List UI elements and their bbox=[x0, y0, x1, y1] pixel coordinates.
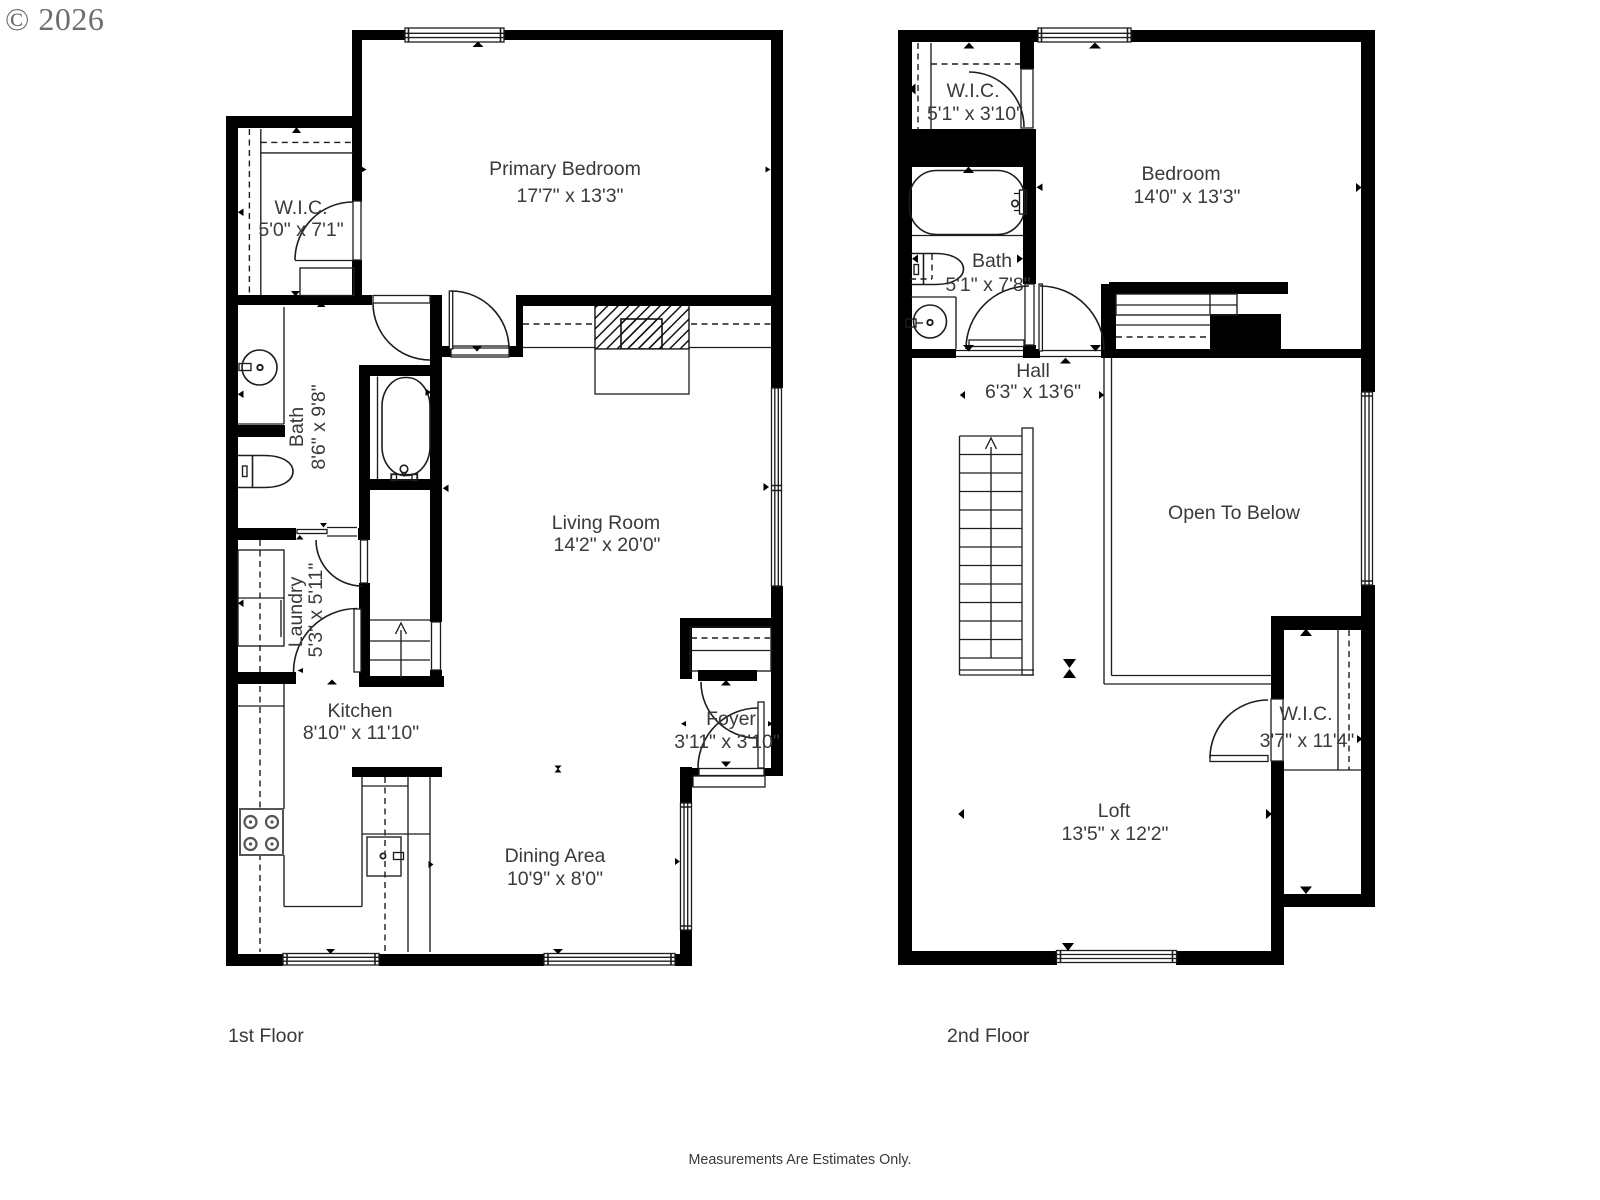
svg-text:Bath: Bath bbox=[972, 250, 1012, 272]
svg-text:Living Room: Living Room bbox=[552, 512, 660, 534]
svg-text:17'7" x 13'3": 17'7" x 13'3" bbox=[517, 185, 624, 207]
svg-text:5'1" x 7'8": 5'1" x 7'8" bbox=[945, 274, 1030, 296]
svg-text:8'10" x 11'10": 8'10" x 11'10" bbox=[303, 722, 419, 744]
svg-text:5'3" x 5'11": 5'3" x 5'11" bbox=[305, 563, 327, 658]
svg-text:W.I.C.: W.I.C. bbox=[1279, 703, 1332, 725]
svg-text:Measurements Are Estimates Onl: Measurements Are Estimates Only. bbox=[688, 1152, 911, 1168]
svg-text:13'5" x 12'2": 13'5" x 12'2" bbox=[1062, 823, 1169, 845]
svg-text:10'9" x 8'0": 10'9" x 8'0" bbox=[507, 868, 603, 890]
svg-text:1st Floor: 1st Floor bbox=[228, 1025, 304, 1047]
svg-text:Kitchen: Kitchen bbox=[327, 700, 392, 722]
svg-text:Bedroom: Bedroom bbox=[1141, 163, 1220, 185]
svg-text:W.I.C.: W.I.C. bbox=[274, 197, 327, 219]
svg-text:© 2026: © 2026 bbox=[5, 1, 104, 37]
svg-text:Primary Bedroom: Primary Bedroom bbox=[489, 158, 641, 180]
svg-text:3'7" x 11'4": 3'7" x 11'4" bbox=[1260, 730, 1355, 752]
svg-text:Dining Area: Dining Area bbox=[505, 845, 606, 867]
svg-text:2nd Floor: 2nd Floor bbox=[947, 1025, 1030, 1047]
svg-text:Laundry: Laundry bbox=[285, 577, 307, 648]
svg-text:5'0" x 7'1": 5'0" x 7'1" bbox=[258, 219, 343, 241]
svg-text:14'2" x 20'0": 14'2" x 20'0" bbox=[554, 534, 661, 556]
svg-text:W.I.C.: W.I.C. bbox=[946, 80, 999, 102]
svg-text:Foyer: Foyer bbox=[706, 708, 756, 730]
svg-text:Hall: Hall bbox=[1016, 360, 1050, 382]
svg-text:Open To Below: Open To Below bbox=[1168, 502, 1301, 524]
svg-text:Bath: Bath bbox=[286, 407, 308, 447]
svg-text:8'6" x 9'8": 8'6" x 9'8" bbox=[308, 384, 330, 469]
svg-text:Loft: Loft bbox=[1098, 800, 1131, 822]
svg-text:6'3" x 13'6": 6'3" x 13'6" bbox=[985, 381, 1081, 403]
svg-text:3'11" x 3'10": 3'11" x 3'10" bbox=[674, 731, 780, 753]
svg-text:14'0" x 13'3": 14'0" x 13'3" bbox=[1134, 186, 1241, 208]
svg-text:5'1" x 3'10": 5'1" x 3'10" bbox=[927, 103, 1023, 125]
